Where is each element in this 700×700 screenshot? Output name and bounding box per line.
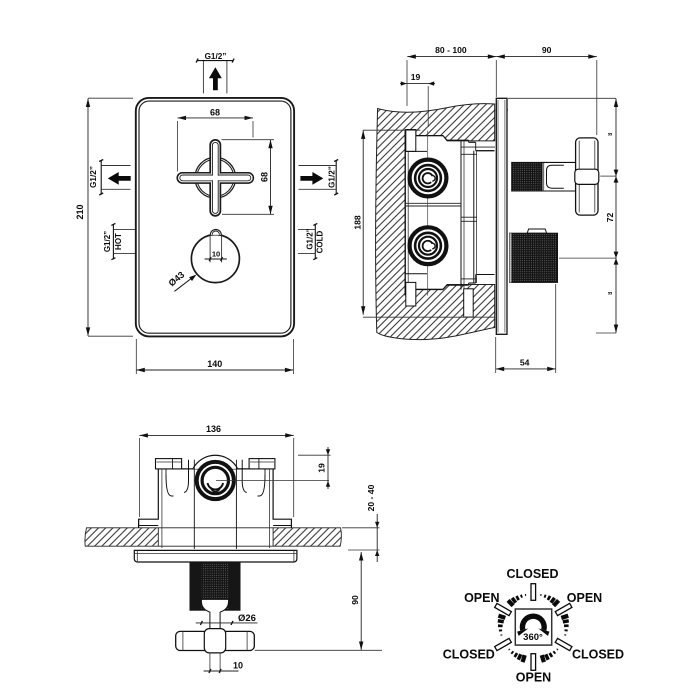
svg-text:COLD: COLD bbox=[316, 230, 325, 253]
svg-text:360°: 360° bbox=[523, 632, 543, 643]
svg-text:10: 10 bbox=[233, 660, 243, 670]
svg-text:90: 90 bbox=[350, 595, 360, 605]
svg-text:G1/2”: G1/2” bbox=[103, 231, 112, 252]
svg-text:G1/2”: G1/2” bbox=[89, 166, 98, 188]
svg-text:188: 188 bbox=[352, 215, 362, 230]
svg-text:OPEN: OPEN bbox=[464, 591, 499, 605]
svg-text:20 - 40: 20 - 40 bbox=[366, 484, 376, 511]
svg-text:80 - 100: 80 - 100 bbox=[435, 45, 467, 55]
svg-text:CLOSED: CLOSED bbox=[443, 648, 495, 662]
svg-text:”: ” bbox=[608, 291, 613, 302]
svg-text:G1/2”: G1/2” bbox=[205, 52, 227, 61]
svg-text:CLOSED: CLOSED bbox=[506, 567, 558, 581]
svg-text:68: 68 bbox=[260, 172, 270, 182]
svg-text:OPEN: OPEN bbox=[567, 591, 602, 605]
svg-text:G1/2”: G1/2” bbox=[305, 228, 314, 249]
svg-text:”: ” bbox=[608, 132, 613, 143]
svg-text:CLOSED: CLOSED bbox=[572, 648, 624, 662]
svg-text:Ø26: Ø26 bbox=[238, 613, 256, 624]
svg-text:10: 10 bbox=[212, 249, 220, 258]
svg-text:19: 19 bbox=[316, 463, 326, 473]
svg-text:G1/2”: G1/2” bbox=[327, 166, 336, 188]
svg-text:90: 90 bbox=[542, 45, 552, 55]
svg-text:OPEN: OPEN bbox=[516, 671, 551, 685]
svg-text:19: 19 bbox=[411, 72, 421, 82]
svg-text:140: 140 bbox=[207, 359, 222, 369]
svg-text:HOT: HOT bbox=[114, 233, 123, 250]
svg-text:68: 68 bbox=[210, 107, 220, 117]
svg-text:210: 210 bbox=[75, 204, 85, 219]
svg-text:136: 136 bbox=[206, 424, 221, 434]
svg-text:54: 54 bbox=[520, 357, 530, 367]
svg-text:72: 72 bbox=[605, 213, 615, 223]
